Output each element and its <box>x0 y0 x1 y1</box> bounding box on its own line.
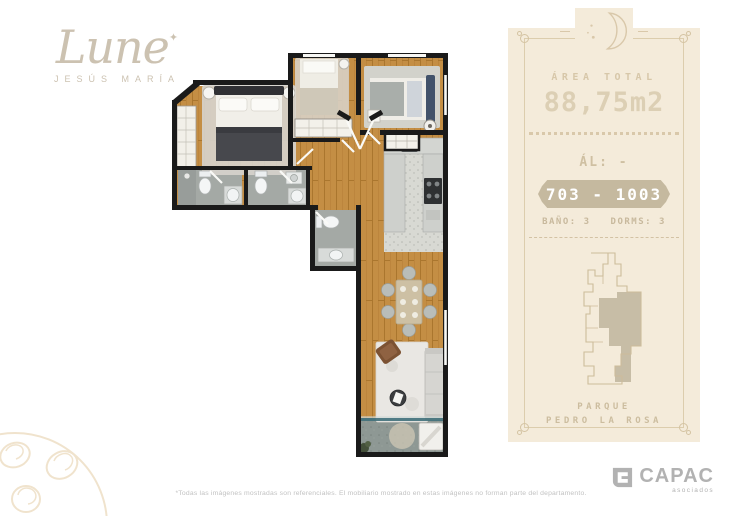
dashed-divider <box>529 237 679 238</box>
disclaimer-text: *Todas las imágenes mostradas son refere… <box>175 490 587 497</box>
bath-count: BAÑO: 3 <box>542 217 590 227</box>
dotted-divider <box>529 132 679 135</box>
bedroom-3 <box>364 66 440 132</box>
building-keyplan <box>560 250 648 392</box>
unit-info-card: ÁREA TOTAL 88,75m2 ÁL: - 703 - 1003 BAÑO… <box>508 28 700 442</box>
capac-icon <box>611 466 634 489</box>
living-area <box>375 338 444 422</box>
unit-footprint <box>599 292 641 382</box>
park-label-line1: PARQUE <box>546 400 662 414</box>
crescent-moon-icon <box>560 8 648 54</box>
corner-ornament-icon <box>679 34 688 43</box>
unit-range-badge: 703 - 1003 <box>538 180 670 208</box>
floor-plan <box>165 48 465 463</box>
park-label-line2: PEDRO LA ROSA <box>546 414 662 428</box>
logo-wordmark: Lune <box>56 20 169 74</box>
page: Lune✦ JESÚS MARÍA <box>0 0 730 516</box>
capac-logo: CAPAC asociados <box>611 466 714 494</box>
area-total-value: 88,75m2 <box>544 87 665 118</box>
moon-sketch-icon <box>0 425 120 516</box>
bedroom-2 <box>295 58 352 137</box>
star-icon: ✦ <box>169 32 178 44</box>
glass-wall <box>359 417 445 418</box>
corner-ornament-icon <box>520 34 529 43</box>
capac-tagline: asociados <box>672 487 714 494</box>
dorms-count: DORMS: 3 <box>611 217 666 227</box>
capac-name: CAPAC <box>639 466 714 486</box>
al-label: ÁL: - <box>579 155 628 170</box>
area-total-label: ÁREA TOTAL <box>551 72 656 83</box>
